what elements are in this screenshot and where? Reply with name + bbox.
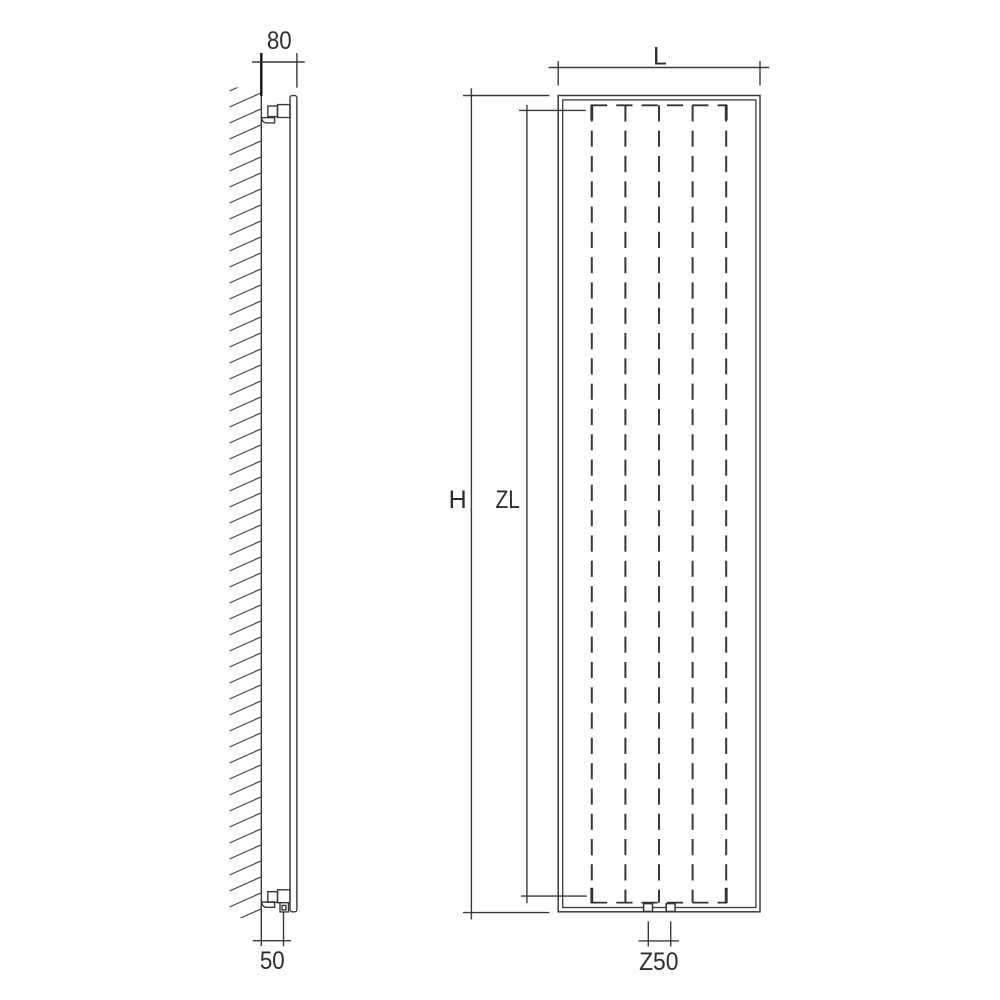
svg-text:Z50: Z50	[639, 948, 678, 976]
svg-text:H: H	[449, 486, 467, 514]
svg-text:L: L	[653, 43, 667, 71]
svg-text:80: 80	[267, 27, 292, 55]
svg-text:50: 50	[260, 947, 285, 975]
svg-text:ZL: ZL	[496, 486, 520, 514]
